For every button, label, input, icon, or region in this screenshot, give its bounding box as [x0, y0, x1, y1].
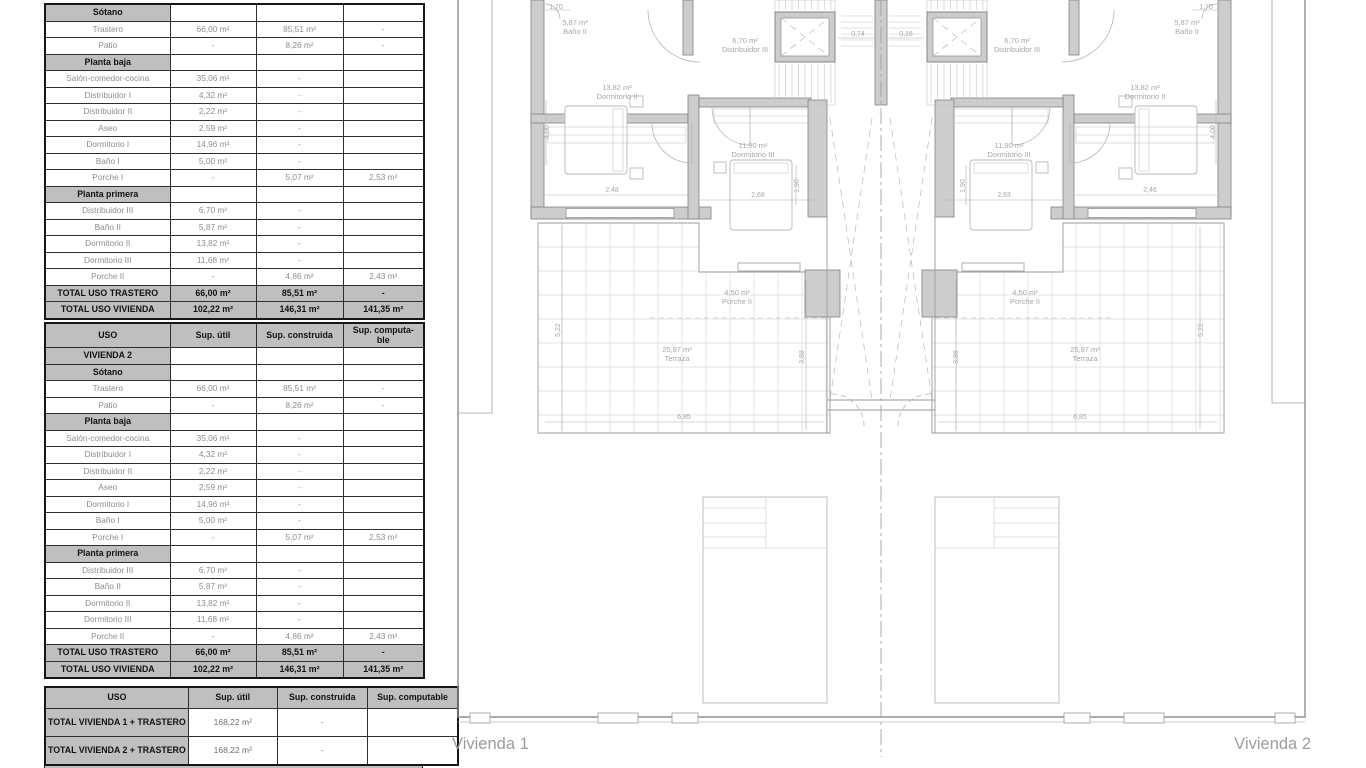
elevator-shaft-2	[927, 12, 987, 62]
room-label: Porche II	[1010, 297, 1040, 306]
room-label: 4,50 m²	[724, 288, 750, 297]
dimension-text: 0,16	[899, 31, 913, 38]
vivienda2-title: Vivienda 2	[1234, 735, 1311, 753]
room-label: 6,70 m²	[1004, 36, 1030, 45]
dimension-text: 3,88	[799, 350, 806, 364]
dimension-text: 2,46	[1143, 187, 1157, 194]
room-label: Dormitorio II	[1125, 92, 1166, 101]
bed-dormitorio2-v2	[1119, 96, 1197, 179]
dimension-text: 2,68	[751, 192, 765, 199]
room-label: Baño II	[1175, 27, 1199, 36]
room-label: 13,82 m²	[1130, 83, 1160, 92]
room-label: Distribuidor III	[994, 45, 1040, 54]
dimension-text: 5,22	[1198, 323, 1205, 337]
page: SótanoTrastero66,00 m²85,51 m²-Patio-8,2…	[0, 0, 1366, 768]
vivienda1-title: Vivienda 1	[452, 735, 529, 753]
room-label: 5,87 m²	[562, 18, 588, 27]
room-label: Distribuidor III	[722, 45, 768, 54]
room-label: 11,90 m²	[738, 141, 768, 150]
room-label: 6,70 m²	[732, 36, 758, 45]
dimension-text: 1,90	[794, 179, 801, 193]
dimension-text: 6,85	[677, 414, 691, 421]
room-label: 5,87 m²	[1174, 18, 1200, 27]
room-label: Dormitorio III	[988, 150, 1031, 159]
floor-plan: 5,87 m² Baño II 6,70 m² Distribuidor III…	[0, 0, 1366, 768]
room-label: 13,82 m²	[602, 83, 632, 92]
dimension-text: 5,22	[555, 323, 562, 337]
dimension-text: 2,93	[997, 192, 1011, 199]
pool-vivienda2	[935, 497, 1059, 703]
room-label: Terraza	[1072, 354, 1098, 363]
room-label: 25,97 m²	[1070, 345, 1100, 354]
dimension-text: 4,00	[544, 125, 551, 139]
room-label: 4,50 m²	[1012, 288, 1038, 297]
dimension-text: 3,88	[953, 350, 960, 364]
dimension-text: 1,70	[1199, 4, 1213, 11]
bed-dormitorio2-v1	[565, 96, 643, 179]
pool-vivienda1	[703, 497, 827, 703]
dimension-text: 1,70	[549, 4, 563, 11]
dimension-text: 4,00	[1210, 125, 1217, 139]
terrace-vivienda2	[932, 223, 1224, 433]
room-label: Terraza	[664, 354, 690, 363]
dimension-text: 0,74	[851, 31, 865, 38]
central-void	[827, 0, 935, 757]
room-label: 25,97 m²	[662, 345, 692, 354]
room-label: Dormitorio II	[597, 92, 638, 101]
room-label: Baño II	[563, 27, 587, 36]
dimension-text: 6,85	[1073, 414, 1087, 421]
room-label: Porche II	[722, 297, 752, 306]
terrace-vivienda1	[538, 223, 830, 433]
elevator-shaft-1	[775, 12, 835, 62]
room-label: Dormitorio III	[732, 150, 775, 159]
room-label: 11,90 m²	[994, 141, 1024, 150]
dimension-text: 2,48	[605, 187, 619, 194]
dimension-text: 1,90	[960, 179, 967, 193]
